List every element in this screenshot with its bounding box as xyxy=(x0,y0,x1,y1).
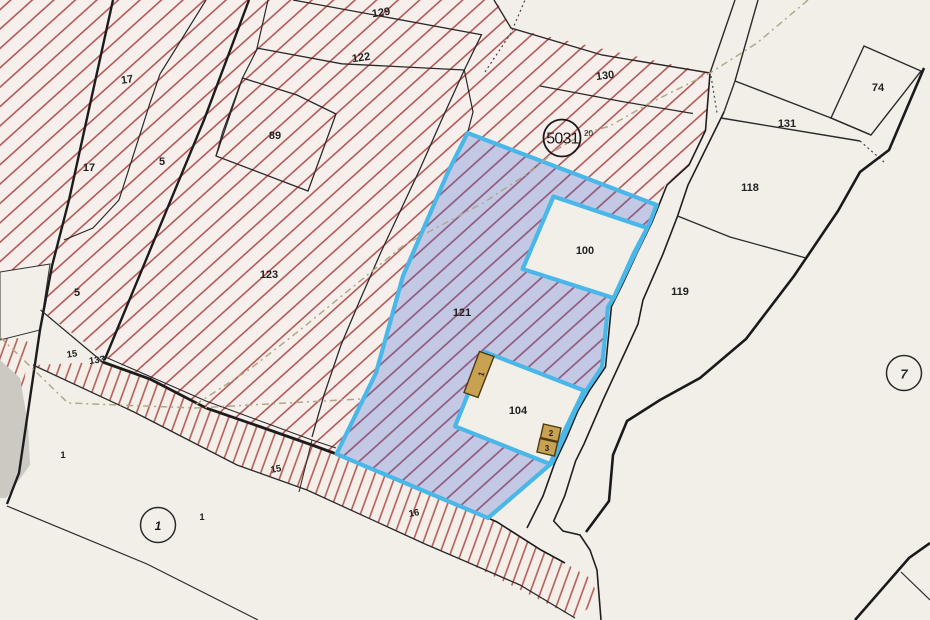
svg-text:2: 2 xyxy=(549,429,554,438)
svg-text:122: 122 xyxy=(351,51,371,65)
svg-text:20: 20 xyxy=(584,129,593,138)
svg-text:5: 5 xyxy=(159,156,165,168)
svg-text:17: 17 xyxy=(83,162,95,174)
svg-text:130: 130 xyxy=(595,69,615,83)
svg-text:118: 118 xyxy=(741,182,759,194)
svg-text:104: 104 xyxy=(509,405,528,417)
svg-text:5031: 5031 xyxy=(546,131,579,148)
svg-text:1: 1 xyxy=(155,519,162,533)
svg-text:1: 1 xyxy=(199,512,205,523)
svg-text:100: 100 xyxy=(576,245,594,257)
svg-text:1: 1 xyxy=(60,450,66,461)
svg-text:16: 16 xyxy=(408,507,420,520)
svg-text:74: 74 xyxy=(872,82,885,94)
svg-text:89: 89 xyxy=(269,130,281,142)
svg-text:133: 133 xyxy=(88,354,105,367)
svg-text:119: 119 xyxy=(671,286,689,298)
svg-text:121: 121 xyxy=(453,307,471,319)
svg-text:3: 3 xyxy=(545,444,550,453)
svg-text:17: 17 xyxy=(120,73,134,87)
svg-text:131: 131 xyxy=(778,118,796,130)
svg-text:5: 5 xyxy=(74,287,80,299)
svg-text:123: 123 xyxy=(260,269,278,281)
svg-text:7: 7 xyxy=(900,367,908,382)
